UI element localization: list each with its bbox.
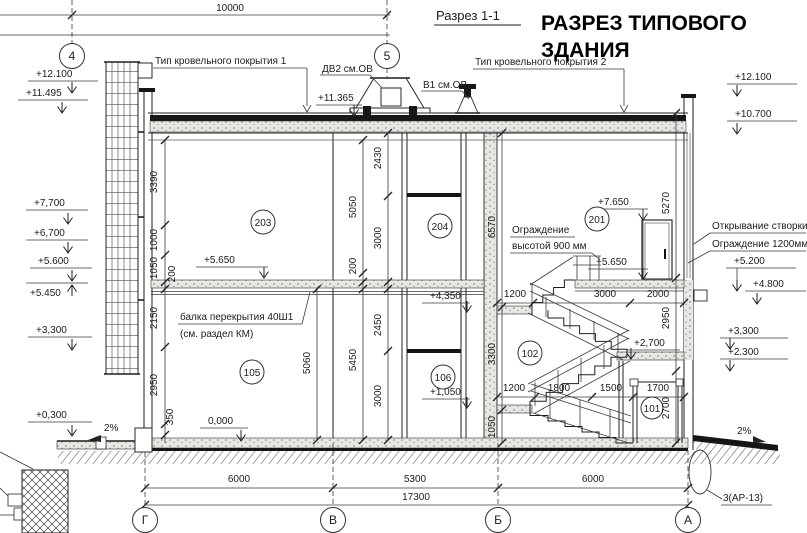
axis-circle-4: 4 bbox=[60, 44, 85, 69]
note-railing-line1: Ограждение bbox=[512, 225, 570, 236]
room-number: 101 bbox=[644, 404, 661, 415]
dim-label: 1200 bbox=[504, 289, 527, 300]
note-beam-line1: балка перекрытия 40Ш1 bbox=[180, 311, 294, 323]
dim-label: 2950 bbox=[149, 373, 160, 396]
dim-label: 5450 bbox=[348, 348, 359, 371]
elevation-label: +3,300 bbox=[728, 326, 759, 337]
detail-ref-label: 3(АР-13) bbox=[723, 493, 763, 504]
dim-chain-floor2: 1200 3000 2000 bbox=[493, 289, 688, 307]
elevation-label: 0,000 bbox=[208, 416, 233, 427]
elevation-label: +5.200 bbox=[734, 256, 765, 267]
dim-chain-mid-a: 5050 200 5450 5060 bbox=[302, 136, 367, 444]
dim-label: 1000 bbox=[149, 228, 160, 251]
room-number: 102 bbox=[522, 349, 539, 360]
dim-label: 5050 bbox=[348, 195, 359, 218]
dim-label: 2950 bbox=[661, 306, 672, 329]
section-label: Разрез 1-1 bbox=[436, 8, 500, 23]
dim-label: 3390 bbox=[149, 170, 160, 193]
axis-label-b: Б bbox=[494, 513, 502, 527]
note-slope-left: 2% bbox=[104, 423, 119, 434]
dim-label: 5300 bbox=[404, 474, 427, 485]
dim-label: 1800 bbox=[548, 383, 571, 394]
axis-label-5: 5 bbox=[384, 49, 391, 63]
dim-label: 200 bbox=[167, 265, 178, 282]
axis-circles-bottom: Г В Б А bbox=[133, 508, 701, 533]
note-vent-v1: В1 см.ОВ bbox=[423, 80, 467, 91]
dim-label: 2150 bbox=[149, 306, 160, 329]
elevation-marks-left: +12.100 +11.495 +7,700 +6,700 +5.600 +5.… bbox=[18, 69, 98, 436]
dim-label: 6000 bbox=[228, 474, 251, 485]
dim-label: 5060 bbox=[302, 351, 313, 374]
note-beam-line2: (см. раздел КМ) bbox=[180, 329, 253, 340]
room-number: 203 bbox=[255, 218, 272, 229]
room-number: 204 bbox=[432, 222, 449, 233]
dim-label: 2450 bbox=[373, 313, 384, 336]
elevation-label: +0,300 bbox=[36, 410, 67, 421]
elevation-label: +5.650 bbox=[204, 255, 235, 266]
dim-label: 5270 bbox=[661, 191, 672, 214]
axis-label-v: В bbox=[329, 513, 337, 527]
corner-detail bbox=[0, 452, 68, 533]
roof-slab bbox=[148, 113, 688, 140]
elevation-label: +12.100 bbox=[36, 69, 73, 80]
axis-label-4: 4 bbox=[69, 49, 76, 63]
section-drawing-canvas: 10000 4 5 Разрез 1-1 РАЗРЕЗ ТИПОВОГО ЗДА… bbox=[0, 0, 807, 533]
axis-circle-5: 5 bbox=[375, 44, 400, 69]
dim-label-top: 10000 bbox=[216, 3, 244, 14]
axis-label-a: А bbox=[684, 513, 692, 527]
dim-label: 3000 bbox=[594, 289, 617, 300]
dim-label: 6570 bbox=[487, 215, 498, 238]
note-railing-1200: Ограждение 1200мм bbox=[712, 239, 807, 250]
dim-label: 1050 bbox=[487, 415, 498, 438]
room-number: 201 bbox=[589, 215, 606, 226]
elevation-label: +4.800 bbox=[753, 279, 784, 290]
elevation-label: +5.600 bbox=[38, 256, 69, 267]
elevation-label: +4,350 bbox=[430, 291, 461, 302]
elevation-label: +11.495 bbox=[26, 88, 62, 99]
note-vent-dv2: ДВ2 см.ОВ bbox=[322, 64, 373, 75]
dim-label: 350 bbox=[165, 408, 176, 425]
note-roof-type-2: Тип кровельного покрытия 2 bbox=[475, 57, 607, 68]
elevation-label: +5.450 bbox=[30, 288, 61, 299]
dim-label: 3000 bbox=[373, 226, 384, 249]
room-number: 106 bbox=[435, 373, 452, 384]
dim-label: 1050 bbox=[149, 256, 160, 279]
dim-label: 17300 bbox=[402, 492, 430, 503]
drawing-header: Разрез 1-1 РАЗРЕЗ ТИПОВОГО ЗДАНИЯ bbox=[434, 8, 747, 62]
elevation-label: +2,700 bbox=[634, 338, 665, 349]
dim-chain-left: 3390 1000 1050 200 2150 2950 350 bbox=[149, 136, 178, 443]
elevation-label: +7,700 bbox=[34, 198, 65, 209]
dim-label: 3300 bbox=[487, 342, 498, 365]
fire-escape-ladder bbox=[104, 62, 152, 374]
roof-fan-dv2 bbox=[350, 78, 430, 115]
dim-label: 200 bbox=[348, 257, 359, 274]
dim-label: 2000 bbox=[647, 289, 670, 300]
room-number: 105 bbox=[244, 368, 261, 379]
page-title-line1: РАЗРЕЗ ТИПОВОГО bbox=[541, 12, 747, 35]
axis-label-g: Г bbox=[142, 513, 149, 527]
dim-label: 1700 bbox=[647, 383, 670, 394]
elevation-label: +5.650 bbox=[596, 257, 627, 268]
dim-label: 1500 bbox=[600, 383, 623, 394]
note-opening: Открывание створки bbox=[712, 221, 807, 232]
door-201 bbox=[642, 220, 672, 279]
dim-label: 1200 bbox=[503, 383, 526, 394]
elevation-label: +6,700 bbox=[34, 228, 65, 239]
note-railing-line2: высотой 900 мм bbox=[512, 241, 587, 252]
dim-label: 6000 bbox=[582, 474, 605, 485]
dim-label: 3000 bbox=[373, 384, 384, 407]
elevation-label: +10.700 bbox=[735, 109, 772, 120]
dim-chain-floor1: 1200 1800 1500 1700 bbox=[493, 383, 688, 401]
dim-label: 2430 bbox=[373, 146, 384, 169]
elevation-label: +7.650 bbox=[598, 197, 629, 208]
drawing-svg: 10000 4 5 Разрез 1-1 РАЗРЕЗ ТИПОВОГО ЗДА… bbox=[0, 0, 807, 533]
elevation-label: +3,300 bbox=[36, 325, 67, 336]
elevation-label: +12.100 bbox=[735, 72, 772, 83]
note-slope-right: 2% bbox=[737, 426, 752, 437]
note-roof-type-1: Тип кровельного покрытия 1 bbox=[155, 56, 287, 67]
elevation-label: +2.300 bbox=[728, 347, 759, 358]
elevation-label: +11.365 bbox=[318, 93, 354, 104]
dim-label: 2700 bbox=[661, 396, 672, 419]
